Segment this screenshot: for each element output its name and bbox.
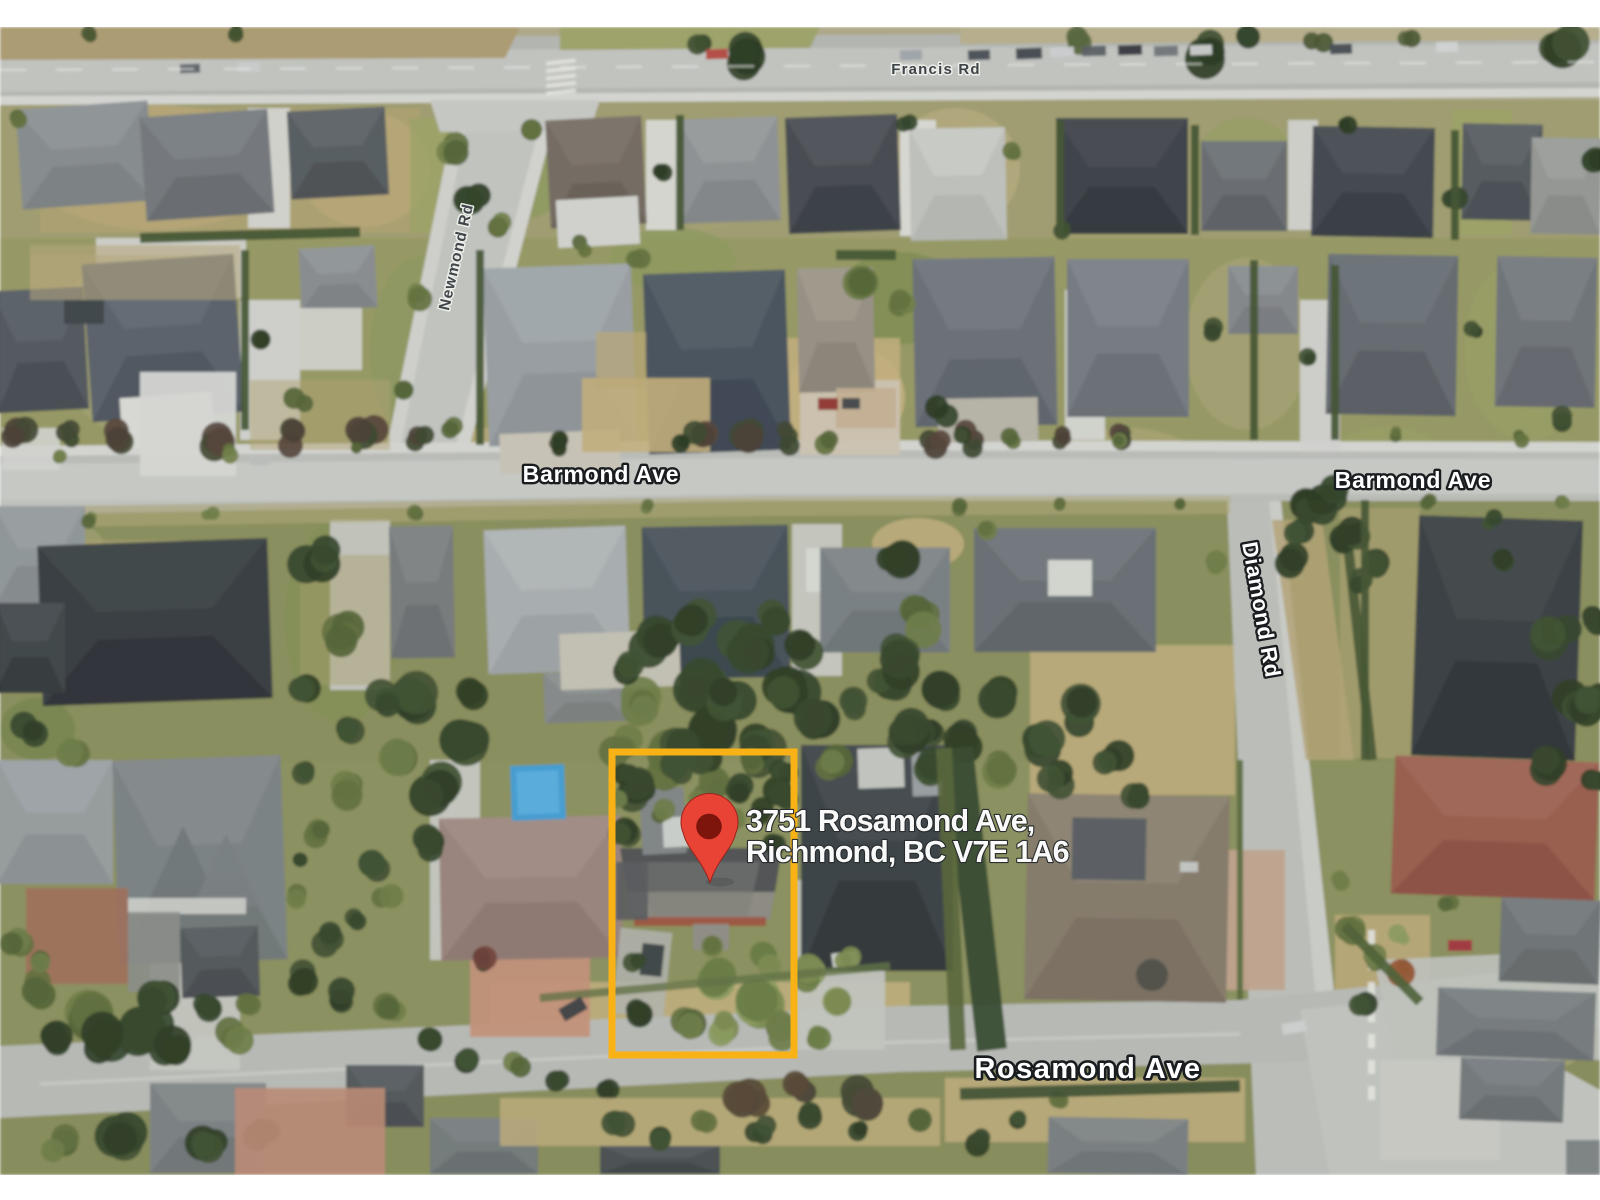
svg-text:Rosamond Ave: Rosamond Ave	[975, 1053, 1202, 1085]
svg-text:Francis Rd: Francis Rd	[891, 61, 981, 78]
svg-text:Barmond Ave: Barmond Ave	[523, 461, 680, 487]
svg-text:Richmond, BC V7E 1A6: Richmond, BC V7E 1A6	[746, 835, 1069, 869]
svg-text:3751 Rosamond Ave,: 3751 Rosamond Ave,	[746, 804, 1034, 838]
svg-text:Barmond Ave: Barmond Ave	[1335, 467, 1492, 493]
